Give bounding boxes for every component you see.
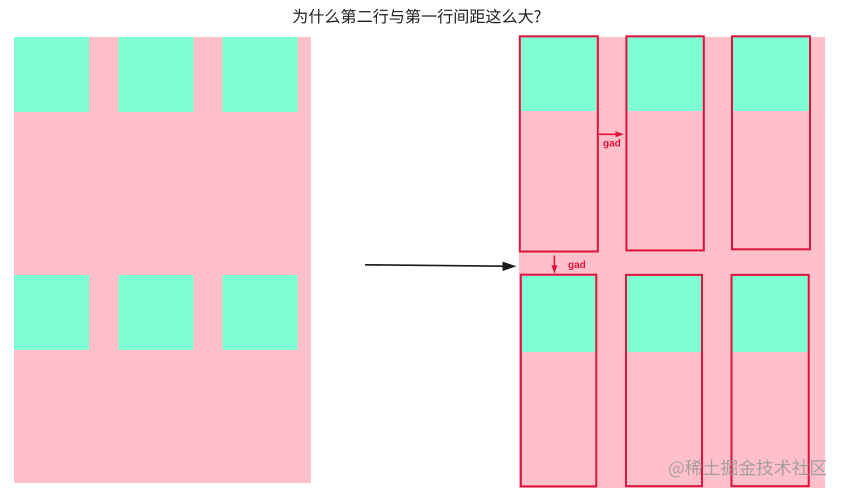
svg-text:gad: gad xyxy=(568,260,586,271)
svg-text:gad: gad xyxy=(603,139,621,150)
